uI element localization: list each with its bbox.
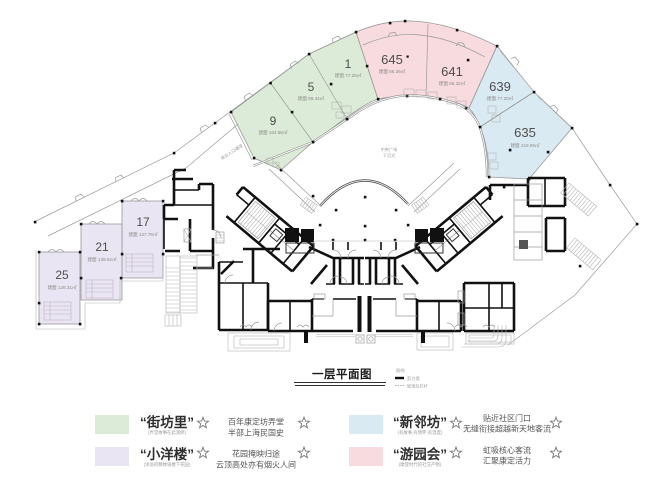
svg-text:一层平面图: 一层平面图 — [312, 367, 372, 381]
svg-text:虹吸核心客流: 虹吸核心客流 — [483, 445, 531, 455]
svg-text:635: 635 — [514, 125, 536, 140]
svg-text:1: 1 — [345, 57, 352, 71]
svg-text:5: 5 — [308, 80, 315, 94]
svg-text:17: 17 — [136, 215, 150, 229]
svg-text:建面 127.79㎡: 建面 127.79㎡ — [128, 231, 158, 238]
svg-text:“游园会”: “游园会” — [393, 446, 447, 462]
svg-text:云顶高处亦有烟火人间: 云顶高处亦有烟火人间 — [216, 460, 296, 470]
svg-text:“新邻坊”: “新邻坊” — [393, 414, 447, 430]
svg-text:641: 641 — [441, 64, 463, 79]
svg-text:(有故事,有情怀,有温度): (有故事,有情怀,有温度) — [398, 429, 443, 436]
svg-text:21: 21 — [95, 240, 109, 254]
svg-text:639: 639 — [489, 79, 511, 94]
svg-text:贴近社区门口: 贴近社区门口 — [483, 413, 531, 423]
svg-text:玻璃及栏杆: 玻璃及栏杆 — [407, 383, 429, 390]
svg-text:无缝衔接超越新天地客流: 无缝衔接超越新天地客流 — [463, 424, 551, 434]
svg-text:半部上海民国史: 半部上海民国史 — [228, 428, 284, 438]
svg-text:建面 104.66㎡: 建面 104.66㎡ — [258, 129, 288, 136]
svg-text:“小洋楼”: “小洋楼” — [140, 446, 194, 462]
svg-text:645: 645 — [381, 52, 403, 67]
svg-text:百年康定坊弄堂: 百年康定坊弄堂 — [228, 417, 284, 427]
svg-text:建面 77.20㎡: 建面 77.20㎡ — [487, 95, 514, 102]
svg-text:(摩登时代的社交产物): (摩登时代的社交产物) — [399, 461, 442, 468]
svg-text:建面 77.25㎡: 建面 77.25㎡ — [335, 72, 362, 79]
svg-text:建面 128.31㎡: 建面 128.31㎡ — [47, 284, 77, 291]
svg-text:“街坊里”: “街坊里” — [140, 414, 194, 430]
svg-text:下沉式: 下沉式 — [383, 152, 396, 159]
svg-text:9: 9 — [270, 114, 277, 128]
svg-text:25: 25 — [55, 268, 69, 282]
svg-text:建面 99.44㎡: 建面 99.44㎡ — [298, 95, 325, 102]
svg-text:建面 86.32㎡: 建面 86.32㎡ — [439, 80, 466, 87]
svg-text:剪力墙: 剪力墙 — [407, 375, 420, 382]
svg-text:建面 139.62㎡: 建面 139.62㎡ — [87, 256, 117, 263]
svg-text:中央广场: 中央广场 — [381, 146, 398, 153]
svg-text:(弄堂故事在此演绎): (弄堂故事在此演绎) — [148, 429, 187, 436]
svg-text:汇聚康定活力: 汇聚康定活力 — [483, 456, 531, 466]
svg-text:建面 219.69㎡: 建面 219.69㎡ — [510, 142, 540, 149]
svg-text:花园掩映归途: 花园掩映归途 — [232, 449, 280, 459]
svg-text:建面 86.26㎡: 建面 86.26㎡ — [379, 68, 406, 75]
svg-text:图例:: 图例: — [396, 367, 406, 374]
svg-text:(洋溢的精致骑楼下花园): (洋溢的精致骑楼下花园) — [144, 461, 191, 468]
